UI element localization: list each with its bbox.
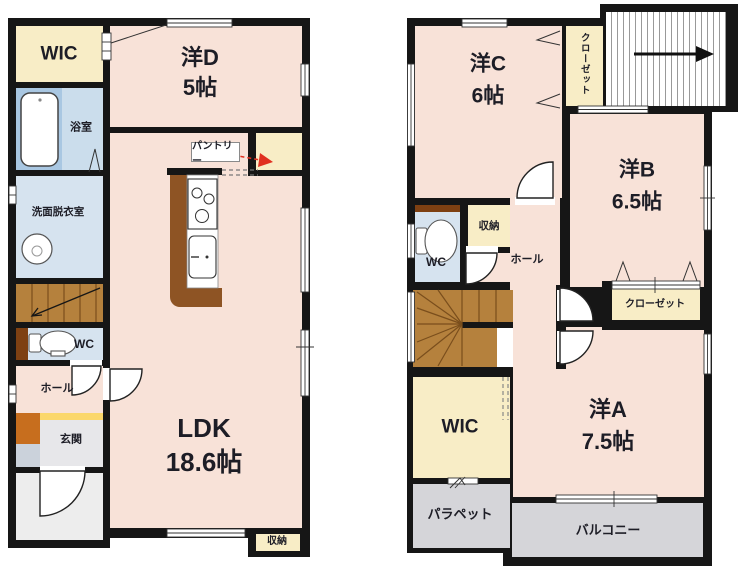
room-c-name: 洋C bbox=[470, 54, 506, 75]
room-a-size: 7.5帖 bbox=[582, 431, 635, 453]
wc-2f-label: WC bbox=[426, 256, 446, 268]
wic-1f-label: WIC bbox=[41, 45, 78, 64]
room-a-name: 洋A bbox=[589, 399, 627, 421]
room-d-size: 5帖 bbox=[183, 77, 217, 99]
room-d-name: 洋D bbox=[181, 47, 219, 69]
closet-mid-label: クローゼット bbox=[625, 300, 685, 310]
room-c-size: 6帖 bbox=[472, 86, 505, 107]
stairs-direction-arrow-1f bbox=[32, 288, 100, 316]
balcony-label: バルコニー bbox=[576, 524, 641, 537]
pantry-label-box: パントリー bbox=[191, 142, 240, 162]
room-b-name: 洋B bbox=[619, 160, 655, 181]
floorplan-canvas: WIC 浴室 洗面脱衣室 WC ホール 玄関 洋D 5帖 パントリー LDK 1… bbox=[0, 0, 740, 574]
hall-1f-label: ホール bbox=[41, 384, 74, 395]
storage-2f-label: 収納 bbox=[479, 221, 500, 232]
stairs-treads-2f bbox=[417, 290, 496, 366]
bathtub-icon bbox=[21, 93, 58, 166]
ldk-size: 18.6帖 bbox=[166, 449, 243, 475]
storage-1f-label: 収納 bbox=[267, 537, 287, 547]
wc-1f-label: WC bbox=[74, 338, 94, 350]
bathroom-label: 浴室 bbox=[70, 123, 92, 134]
sink-icon bbox=[22, 234, 52, 264]
stairwell-direction-arrow bbox=[634, 46, 714, 62]
washroom-label: 洗面脱衣室 bbox=[32, 207, 85, 218]
kitchen-icon bbox=[167, 168, 258, 307]
pantry-label: パントリー bbox=[192, 137, 239, 167]
dashed-opening-icon bbox=[503, 377, 508, 420]
wic-2f-label: WIC bbox=[442, 418, 479, 437]
hall-2f-label: ホール bbox=[511, 255, 544, 266]
closet-top-label: クローゼット bbox=[579, 33, 589, 96]
door-arc-icon bbox=[40, 162, 593, 516]
toilet-icon bbox=[29, 331, 76, 356]
entrance-label: 玄関 bbox=[60, 435, 82, 446]
parapet-label: パラペット bbox=[427, 508, 492, 521]
linework-overlay bbox=[0, 0, 740, 574]
room-b-size: 6.5帖 bbox=[612, 192, 662, 213]
ldk-name: LDK bbox=[177, 415, 230, 441]
